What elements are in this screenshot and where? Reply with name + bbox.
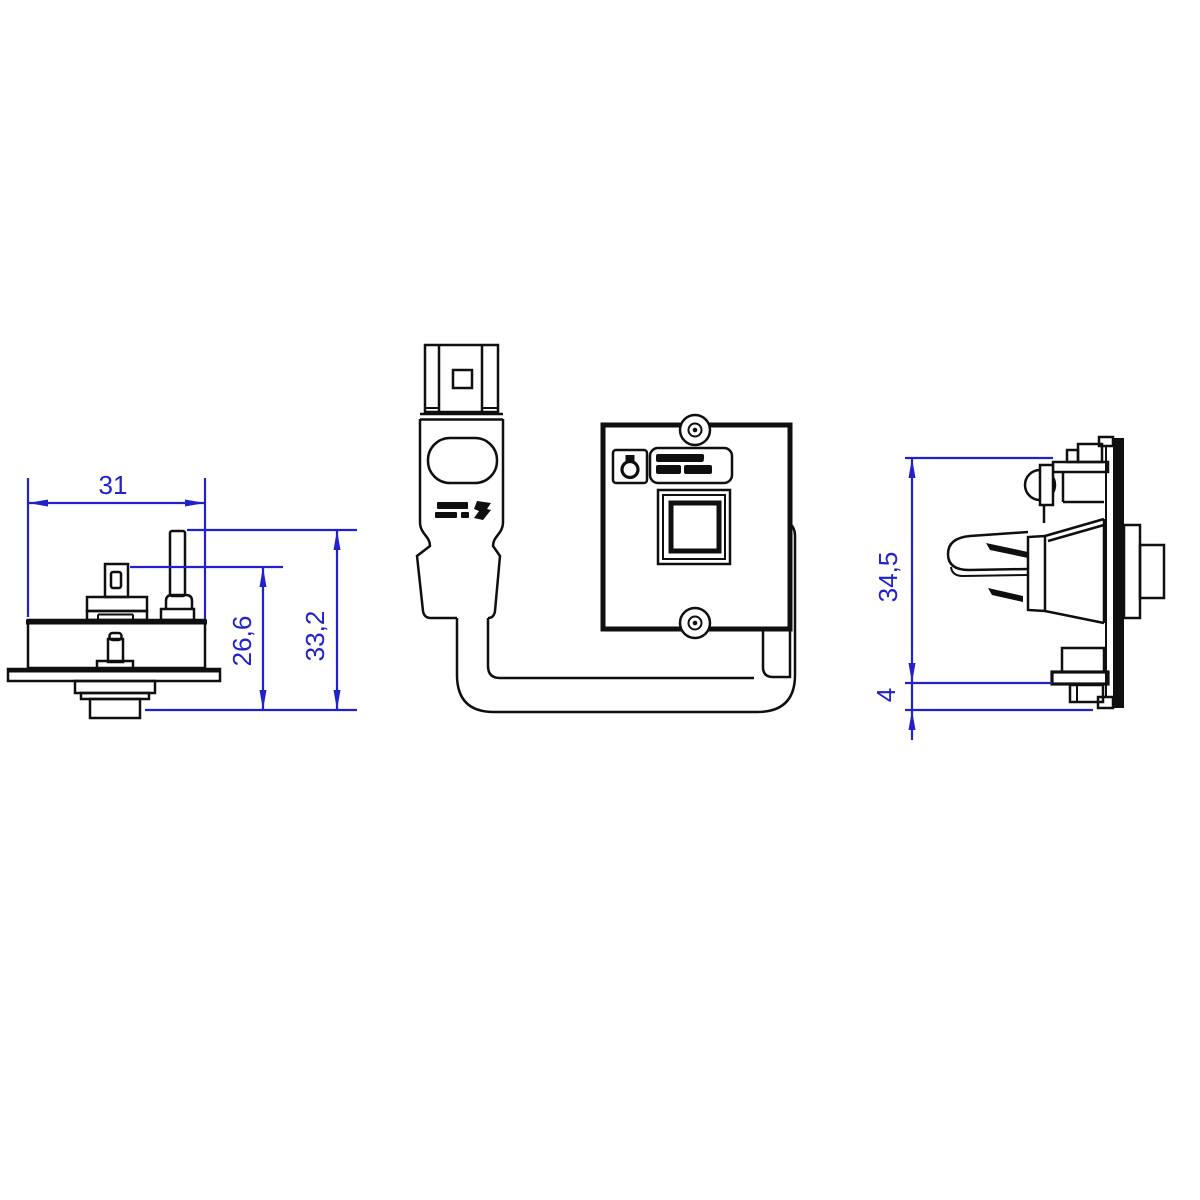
push-button — [658, 490, 730, 564]
brand-badge — [613, 450, 647, 483]
connector-latch — [425, 345, 498, 412]
left-view-dimensions: 31 26,6 33,2 — [28, 470, 357, 710]
actuator-pin — [170, 531, 185, 596]
button-barrel-nose — [1140, 545, 1164, 598]
terminal-pin-lower — [988, 588, 1023, 602]
terminal-post-slot — [111, 572, 121, 588]
right-side-view — [948, 437, 1164, 708]
terminal-flat — [1040, 465, 1053, 505]
dc-rating-marks-icon — [435, 501, 491, 520]
terminal-post — [105, 564, 128, 597]
strain-relief-left — [417, 522, 457, 618]
drawing-canvas: 31 26,6 33,2 — [0, 0, 1200, 1200]
dim-width-label: 31 — [99, 470, 128, 500]
terminal-base — [87, 597, 147, 611]
bezel-plate-edge — [1113, 438, 1124, 708]
boss-step-3 — [90, 699, 140, 718]
technical-drawing: 31 26,6 33,2 — [0, 0, 1200, 1200]
dim-panel-thickness-label: 4 — [871, 688, 901, 702]
button-barrel-collar — [1124, 525, 1140, 618]
right-view-dimensions: 34,5 4 — [871, 458, 1093, 740]
terminal-pin-upper — [986, 543, 1028, 558]
left-side-view — [8, 531, 220, 718]
dim-side-height-label: 34,5 — [873, 552, 903, 603]
front-view — [417, 345, 795, 712]
connector-latch-window — [453, 370, 472, 388]
cable-entry-step — [763, 629, 790, 677]
center-post-collar — [97, 661, 133, 669]
dim-bracket-height-label: 26,6 — [227, 616, 257, 667]
top-flange-bar — [1053, 462, 1108, 472]
top-clamp-step — [1067, 450, 1078, 462]
bottom-flange-bar — [1052, 672, 1108, 684]
arrowhead — [28, 500, 48, 507]
boss-step-1 — [75, 681, 155, 693]
actuator-pin-base — [161, 609, 194, 620]
cable-outer — [457, 523, 795, 712]
bottom-clamp-block — [1062, 648, 1104, 672]
dim-overall-height-label: 33,2 — [300, 611, 330, 662]
brand-label-text-illegible — [656, 454, 712, 474]
screw-head-icon-top — [680, 415, 710, 445]
connector-grip-oval — [428, 438, 497, 483]
arrowhead — [185, 500, 205, 507]
brand-label — [650, 448, 732, 483]
strain-relief-right — [488, 522, 503, 618]
center-post — [108, 639, 123, 662]
screw-head-icon-bottom — [680, 608, 710, 638]
